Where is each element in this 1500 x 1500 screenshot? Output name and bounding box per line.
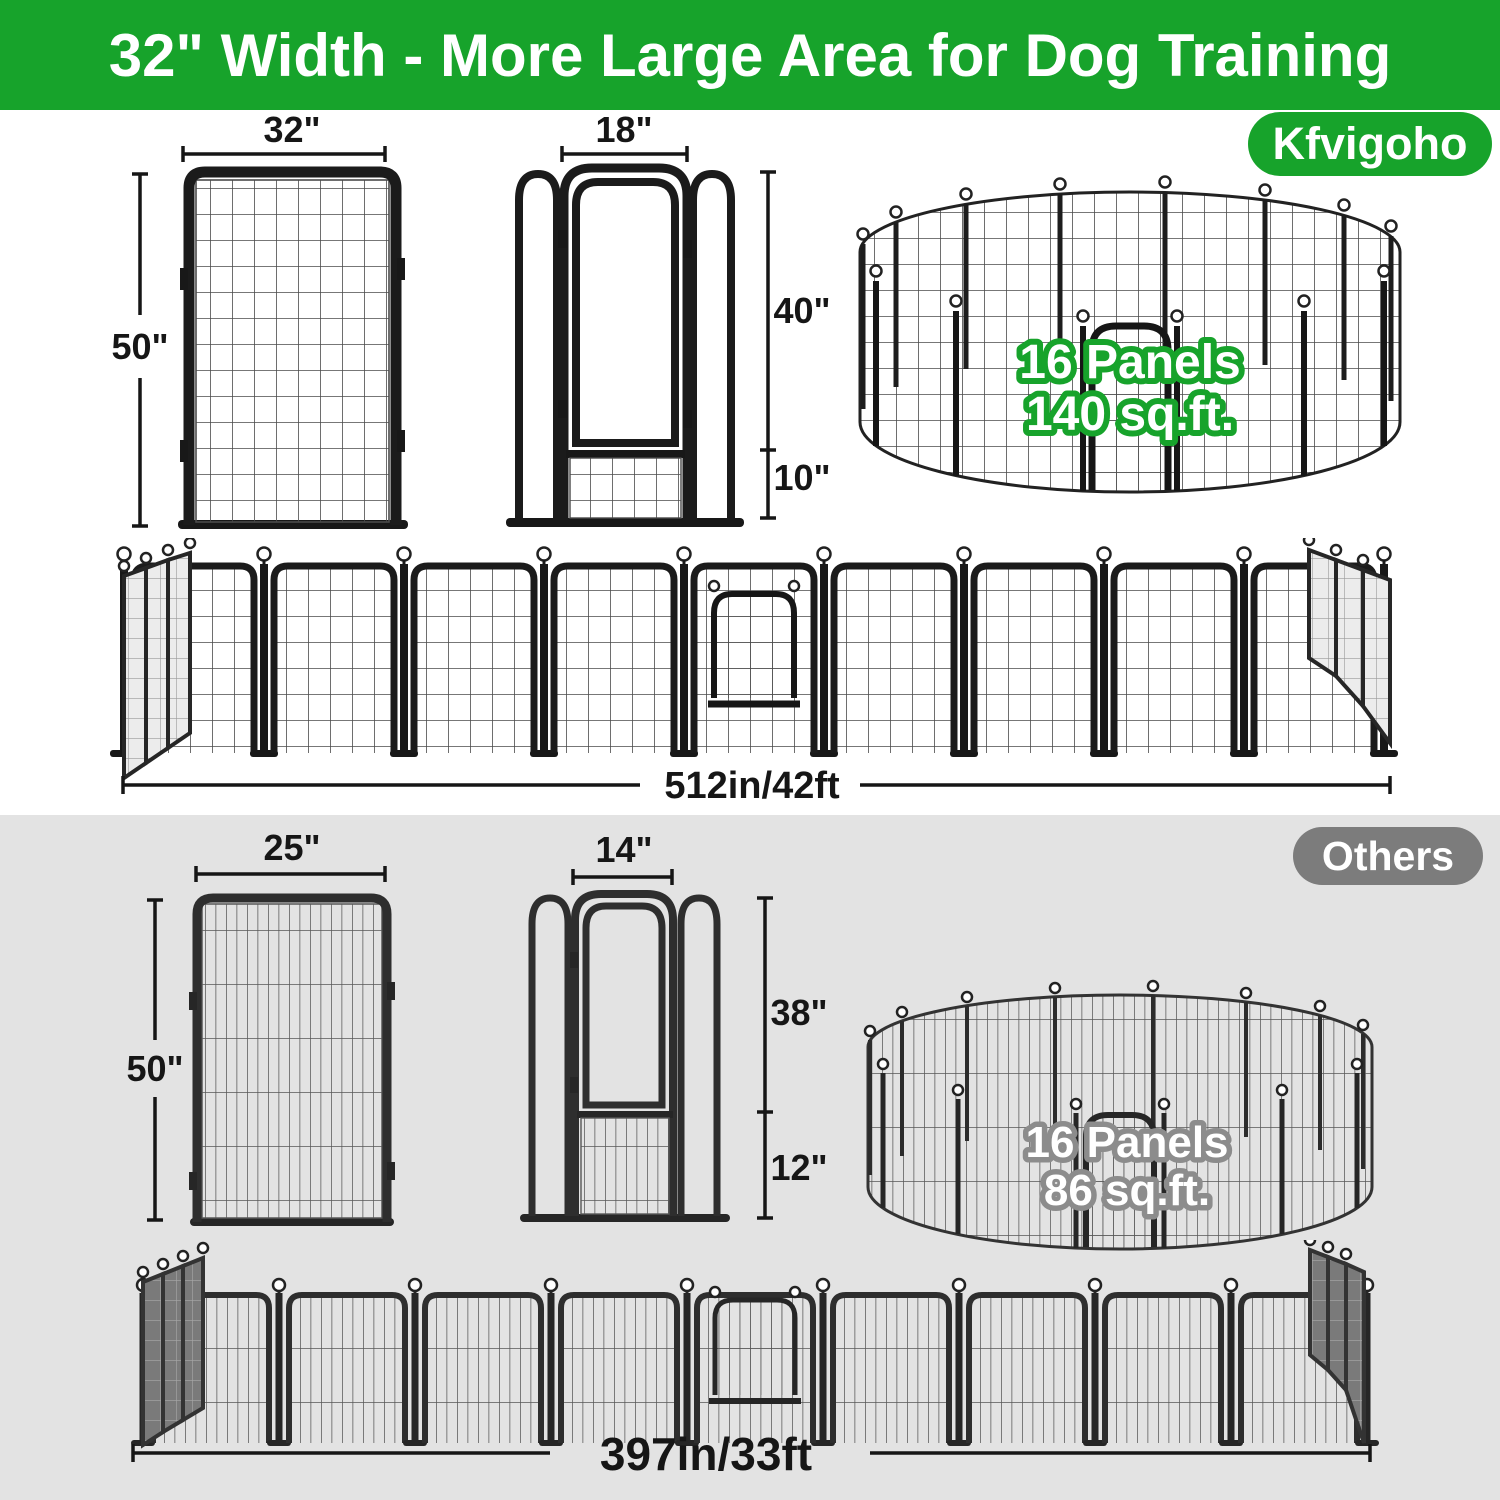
panel-mesh	[202, 904, 382, 1218]
panel-width-label: 32"	[263, 110, 320, 150]
door-lower-height-label: 10"	[773, 457, 830, 498]
brand-badge: Kfvigoho	[1248, 112, 1492, 176]
door-panel-drawing	[506, 168, 744, 527]
door-width-dimension: 14"	[573, 829, 672, 885]
panel-mesh	[196, 180, 389, 522]
width-dimension: 32"	[183, 110, 385, 162]
door-bottom-bar	[566, 450, 685, 458]
row-door-gate	[714, 594, 794, 698]
door-bottom-mesh	[581, 1118, 669, 1214]
panel-foot	[520, 1214, 730, 1222]
door-gate	[576, 182, 675, 443]
others-door-diagram: 14" 38" 12"	[500, 822, 860, 1252]
door-height-dimension: 40" 10"	[760, 172, 831, 518]
row-total-label: 512in/42ft	[664, 765, 840, 803]
height-dimension: 50"	[126, 900, 183, 1220]
brand-door-diagram: 18" 40" 10"	[480, 110, 850, 542]
side-strip-right	[693, 174, 731, 520]
side-strip-right	[681, 898, 717, 1216]
door-width-label: 18"	[595, 110, 652, 150]
pen-area-label: 140 sq.ft.	[1026, 388, 1234, 441]
door-bottom-mesh	[570, 458, 681, 518]
others-badge: Others	[1293, 827, 1483, 885]
door-height-dimension: 38" 12"	[757, 898, 828, 1218]
door-width-dimension: 18"	[562, 110, 687, 162]
panel-foot	[506, 518, 744, 527]
header-banner: 32" Width - More Large Area for Dog Trai…	[0, 0, 1500, 110]
brand-playpen-illustration: 16 Panels 140 sq.ft.	[830, 160, 1430, 555]
brand-panel-diagram: 32" 50"	[100, 110, 410, 542]
others-panel-diagram: 25" 50"	[100, 822, 410, 1252]
panel-width-label: 25"	[263, 827, 320, 868]
row-total-label: 397in/33ft	[600, 1428, 812, 1480]
pen-panel-count-label: 16 Panels	[1025, 1118, 1228, 1167]
panel-drawing	[189, 898, 395, 1226]
brand-badge-label: Kfvigoho	[1273, 118, 1468, 170]
door-upper-height-label: 40"	[773, 290, 830, 331]
pen-panel-count-label: 16 Panels	[1019, 336, 1240, 389]
pen-area-label: 86 sq.ft.	[1044, 1166, 1210, 1215]
door-panel-drawing	[520, 894, 730, 1222]
page-title: 32" Width - More Large Area for Dog Trai…	[109, 21, 1391, 90]
door-bottom-bar	[577, 1111, 673, 1118]
door-lower-height-label: 12"	[770, 1147, 827, 1188]
door-width-label: 14"	[595, 829, 652, 870]
row-door-panel	[694, 566, 814, 753]
row-door-panel	[697, 1287, 813, 1443]
row-door-gate	[715, 1300, 795, 1395]
panel-height-label: 50"	[111, 326, 168, 367]
row-total-dimension: 512in/42ft	[123, 765, 1390, 803]
door-gate	[586, 906, 662, 1105]
panel-drawing	[178, 172, 408, 529]
panel-height-label: 50"	[126, 1048, 183, 1089]
side-strip-left	[519, 174, 557, 520]
others-badge-label: Others	[1322, 833, 1454, 880]
width-dimension: 25"	[196, 827, 385, 882]
others-panel-row: 397in/33ft	[80, 1240, 1440, 1490]
product-infographic: 32" Width - More Large Area for Dog Trai…	[0, 0, 1500, 1500]
panel-foot	[190, 1218, 394, 1226]
side-strip-left	[532, 898, 568, 1216]
door-upper-height-label: 38"	[770, 992, 827, 1033]
brand-panel-row: 512in/42ft	[80, 538, 1440, 803]
height-dimension: 50"	[111, 174, 168, 526]
